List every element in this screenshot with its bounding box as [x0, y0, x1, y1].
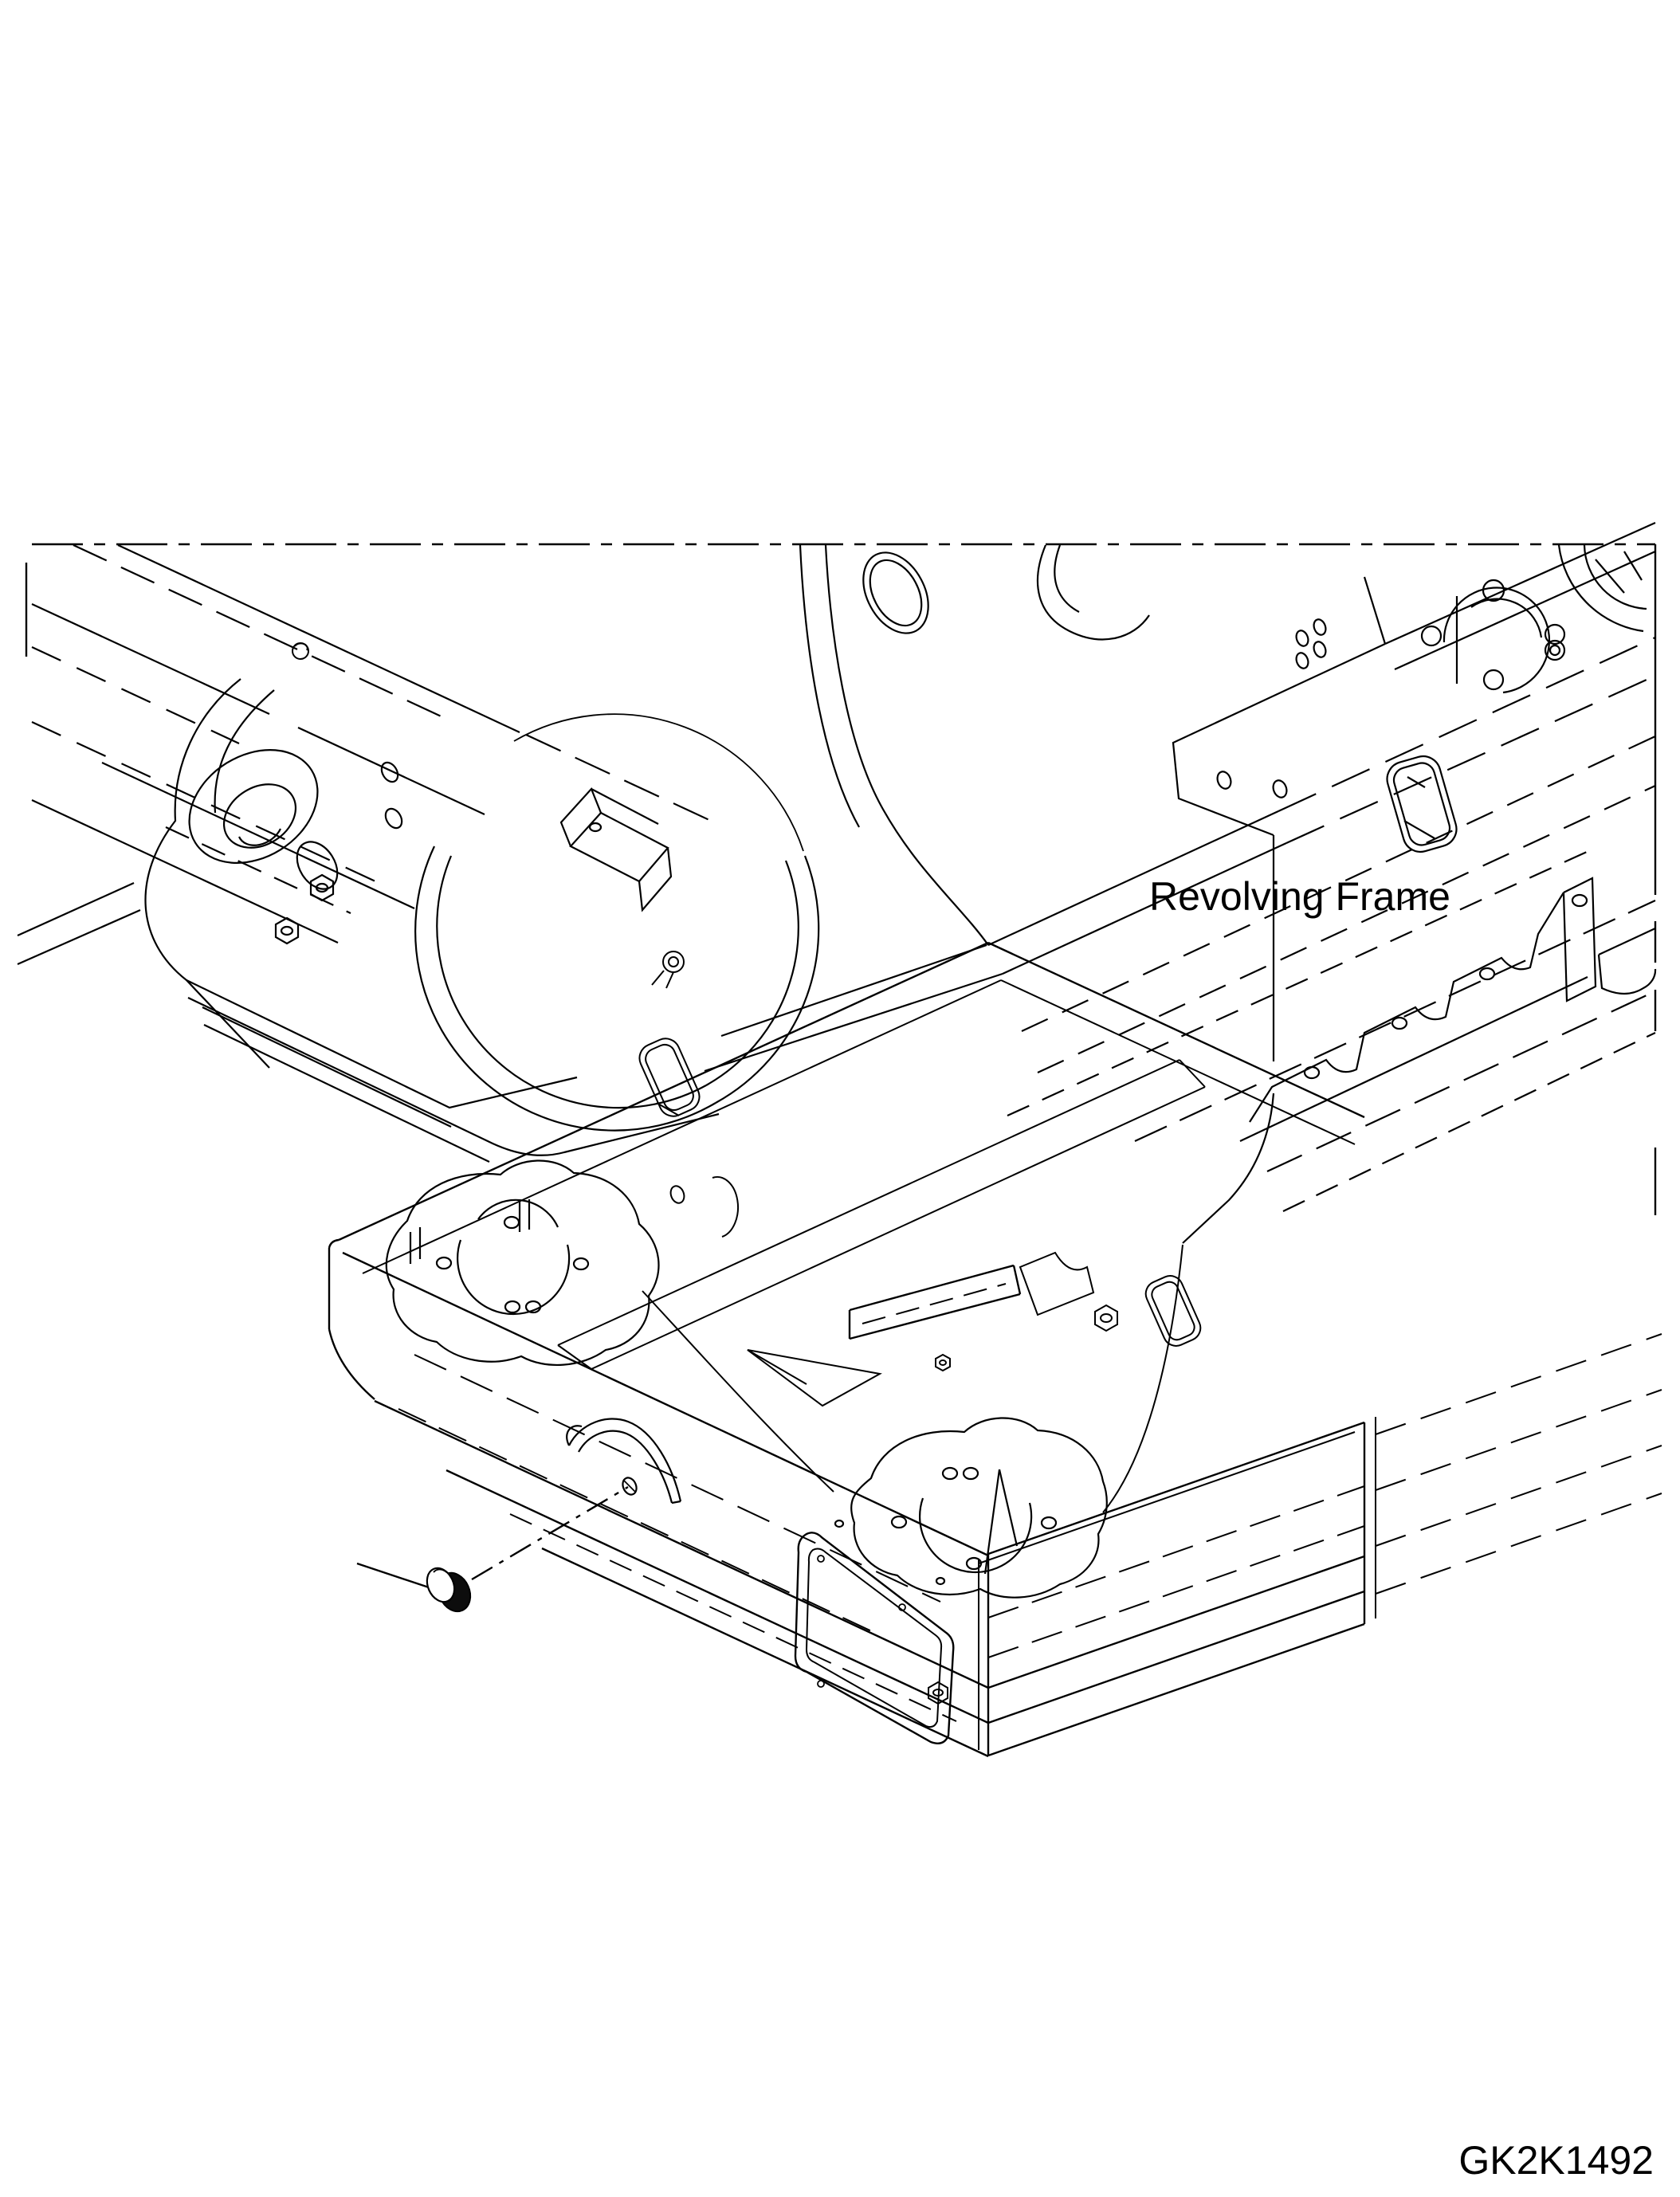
grommet-right-plate: [1383, 752, 1460, 856]
plug-part-callout: [357, 1487, 628, 1617]
plug-part: [422, 1563, 476, 1616]
hex-bolt-icon: [936, 1355, 950, 1371]
flange-opening-1: [387, 1160, 834, 1492]
hex-nut-icon: [1095, 1305, 1117, 1331]
frame-label: Revolving Frame: [1149, 874, 1450, 919]
main-box: [329, 943, 1662, 1756]
handle-slot: [567, 1419, 681, 1503]
revolving-frame-diagram: Revolving Frame GK2K1492: [0, 0, 1680, 2197]
leader-tail: [357, 1563, 429, 1587]
boss-bore: [212, 771, 308, 861]
small-knob: [292, 643, 684, 988]
boom-bracket: [18, 679, 719, 1162]
mid-frame-rails: [705, 541, 1149, 1071]
upper-left-truss: [32, 545, 721, 943]
drawing-page: Revolving Frame GK2K1492: [0, 0, 1680, 2197]
leader-line: [472, 1487, 628, 1579]
swing-circle: [379, 714, 818, 1130]
boss-outer: [168, 727, 339, 886]
hex-nut-icon: [276, 918, 298, 944]
gasket-loop: [795, 1532, 953, 1743]
grommet-right-face: [1142, 1272, 1205, 1350]
drawing-code: GK2K1492: [1458, 2138, 1654, 2183]
channel-bracket: [561, 789, 671, 910]
